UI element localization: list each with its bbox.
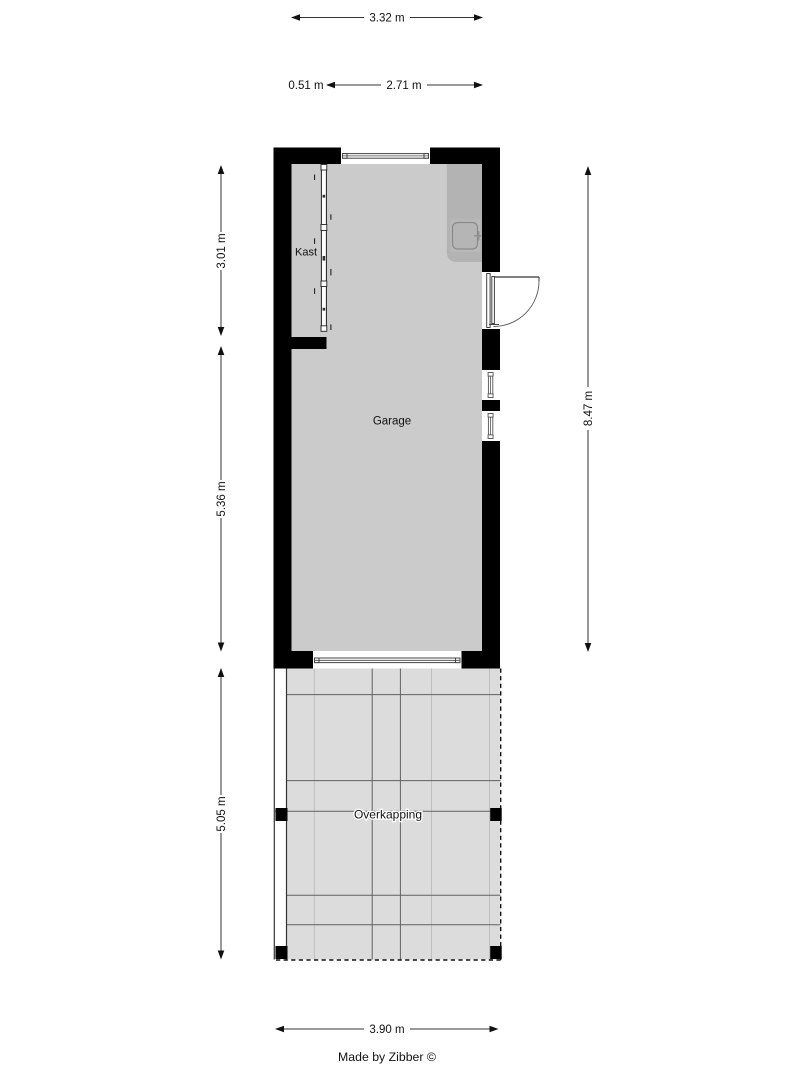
svg-text:3.01 m: 3.01 m xyxy=(216,233,228,268)
svg-text:2.71 m: 2.71 m xyxy=(386,80,421,92)
svg-text:5.36 m: 5.36 m xyxy=(216,481,228,516)
svg-text:Overkapping: Overkapping xyxy=(354,808,422,822)
svg-text:3.32 m: 3.32 m xyxy=(369,13,404,25)
svg-text:3.90 m: 3.90 m xyxy=(369,1024,404,1036)
svg-text:5.05 m: 5.05 m xyxy=(216,796,228,831)
svg-text:Garage: Garage xyxy=(373,416,411,428)
svg-text:Kast: Kast xyxy=(295,247,317,259)
svg-text:8.47 m: 8.47 m xyxy=(583,391,595,426)
svg-text:0.51 m: 0.51 m xyxy=(288,80,323,92)
svg-text:Made by Zibber ©: Made by Zibber © xyxy=(338,1050,436,1064)
